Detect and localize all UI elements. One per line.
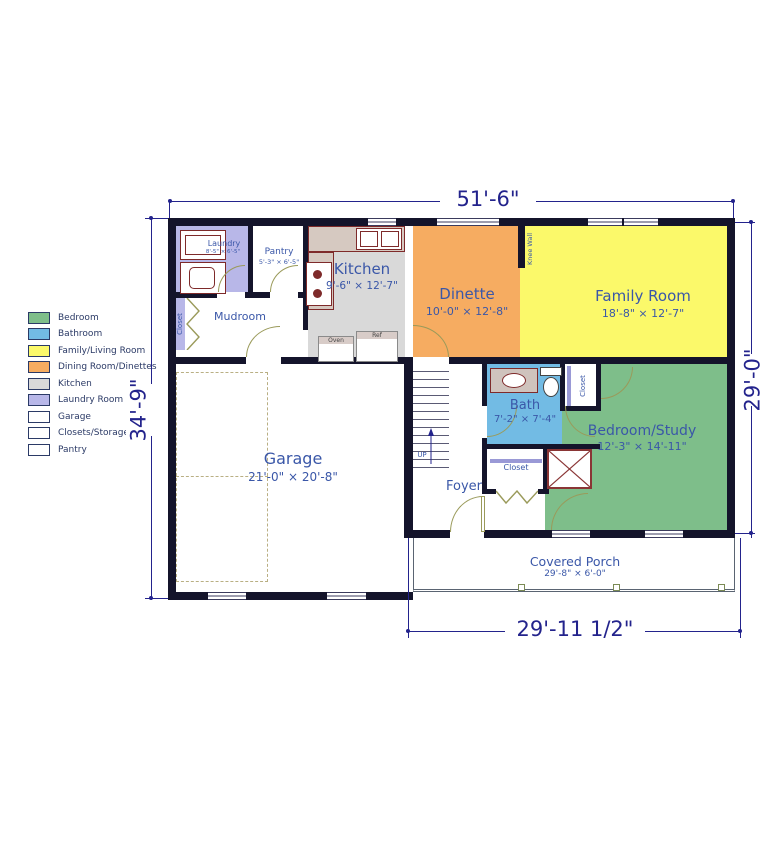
pantry-size: 5'-3" × 6'-5" (250, 259, 308, 266)
legend-swatch-closets (28, 427, 50, 439)
wall-bottom-garage (168, 592, 413, 600)
bath-closet-shelf (567, 366, 571, 406)
legend-label: Family/Living Room (58, 346, 145, 356)
kitchen-size: 9'-6" × 12'-7" (312, 281, 412, 292)
window-family-b (624, 218, 658, 226)
legend-swatch-family (28, 345, 50, 357)
bath-sink-bowl (502, 373, 526, 388)
laundry-label: Laundry (196, 240, 252, 248)
window-kitchen (368, 218, 396, 226)
pantry-door-arc (270, 265, 298, 292)
mudroom-label: Mudroom (200, 311, 280, 323)
bedroom-label: Bedroom/Study (562, 424, 722, 439)
up-label: UP (413, 452, 431, 459)
porch-post-2 (613, 584, 620, 591)
garage-size: 21'-0" × 20'-8" (232, 471, 354, 484)
legend-swatch-pantry (28, 444, 50, 456)
window-garage-b (327, 592, 366, 600)
stair-up-arrow-icon (426, 428, 436, 466)
toilet-bowl (543, 377, 559, 397)
dim-dot (149, 596, 153, 600)
legend-label: Pantry (58, 445, 87, 455)
porch-post-1 (518, 584, 525, 591)
garage-label: Garage (245, 451, 341, 468)
window-garage-a (208, 592, 246, 600)
dim-ext-bottom-left (408, 538, 409, 638)
dim-dot (731, 199, 735, 203)
dim-bottom-text: 29'-11 1/2" (505, 617, 645, 641)
bath-closet-text: Closet (579, 375, 587, 397)
dim-right-value: 29'-0" (741, 348, 765, 411)
dinette-label: Dinette (424, 287, 510, 303)
mudroom-closet-text: Closet (176, 313, 184, 335)
legend-label: Bedroom (58, 313, 99, 323)
kitchen-label: Kitchen (320, 262, 404, 278)
front-door-leaf (481, 496, 485, 532)
shower-x-icon (549, 451, 590, 487)
family-room-label: Family Room (558, 289, 728, 305)
dinette-size: 10'-0" × 12'-8" (414, 306, 520, 318)
wall-bath-left (482, 364, 487, 406)
dim-dot (738, 629, 742, 633)
family-room-size: 18'-8" × 12'-7" (573, 308, 713, 320)
dim-ext-top-left (169, 202, 170, 218)
window-dinette (437, 218, 499, 226)
legend-label: Kitchen (58, 379, 92, 389)
front-door-arc (450, 496, 483, 532)
legend-label: Bathroom (58, 329, 102, 339)
kitchen-sink-bowl-right (381, 231, 399, 247)
window-bedroom-a (552, 530, 590, 538)
legend-swatch-bedroom (28, 312, 50, 324)
dim-ext-top-right (733, 202, 734, 218)
dim-top-text: 51'-6" (440, 187, 536, 211)
legend-item-pantry: Pantry (28, 443, 157, 456)
legend-item-bedroom: Bedroom (28, 311, 157, 324)
dim-right-text: 29'-0" (740, 354, 766, 406)
kitchen-oven: Oven (318, 336, 354, 362)
refrigerator-label: Ref (357, 332, 397, 339)
dim-dot (406, 629, 410, 633)
bedroom-closet-label: Closet (492, 464, 540, 472)
wall-garage-foyer (404, 357, 413, 538)
pantry-label: Pantry (256, 248, 302, 257)
dryer-door (189, 267, 215, 289)
dim-dot (149, 216, 153, 220)
legend-label: Laundry Room (58, 395, 123, 405)
legend-swatch-garage (28, 411, 50, 423)
wall-laundry-bottom-mid (245, 292, 270, 298)
bath-closet-label: Closet (576, 366, 590, 406)
knee-wall-label: Knee Wall (523, 226, 537, 272)
kitchen-sink-bowl-left (360, 231, 378, 247)
window-family-a (588, 218, 622, 226)
mudroom-closet-label: Closet (174, 300, 186, 348)
knee-wall-text: Knee Wall (526, 233, 534, 265)
covered-porch-label: Covered Porch (510, 555, 640, 568)
legend-label: Garage (58, 412, 91, 422)
legend-label: Closets/Storage (58, 428, 129, 438)
legend-swatch-kitchen (28, 378, 50, 390)
wall-left (168, 218, 176, 600)
legend-label: Dining Room/Dinettes (58, 362, 157, 372)
covered-porch-size: 29'-8" × 6'-0" (520, 570, 630, 579)
legend-item-dining: Dining Room/Dinettes (28, 361, 157, 374)
laundry-size: 8'-5" × 6'-5" (192, 250, 254, 256)
floor-plan-canvas: Bedroom Bathroom Family/Living Room Dini… (0, 0, 781, 849)
wall-right (727, 218, 735, 538)
foyer-label: Foyer (440, 480, 488, 494)
legend-swatch-laundry (28, 394, 50, 406)
dim-dot (749, 531, 753, 535)
dim-dot (749, 220, 753, 224)
legend-item-bathroom: Bathroom (28, 328, 157, 341)
dim-left-text: 34'-9" (126, 384, 152, 436)
mudroom-door-arc (246, 326, 280, 357)
dim-left-value: 34'-9" (127, 378, 151, 441)
oven-label: Oven (319, 337, 353, 344)
bedroom-closet-bifold-icon (496, 490, 538, 505)
bath-size: 7'-2" × 7'-4" (486, 415, 564, 426)
window-bedroom-b (645, 530, 683, 538)
legend-swatch-bathroom (28, 328, 50, 340)
dim-dot (168, 199, 172, 203)
legend-item-family: Family/Living Room (28, 344, 157, 357)
toilet-tank (540, 367, 562, 376)
bath-label: Bath (494, 399, 556, 413)
kitchen-refrigerator: Ref (356, 331, 398, 362)
legend-swatch-dining (28, 361, 50, 373)
dim-ext-bottom-right (740, 538, 741, 638)
wall-closet-bottom-b (538, 489, 549, 494)
wall-main-c (449, 357, 735, 364)
mudroom-closet-bifold-icon (186, 298, 201, 350)
bedroom-size: 12'-3" × 14'-11" (562, 441, 722, 453)
porch-post-3 (718, 584, 725, 591)
wall-main-a (168, 357, 246, 364)
